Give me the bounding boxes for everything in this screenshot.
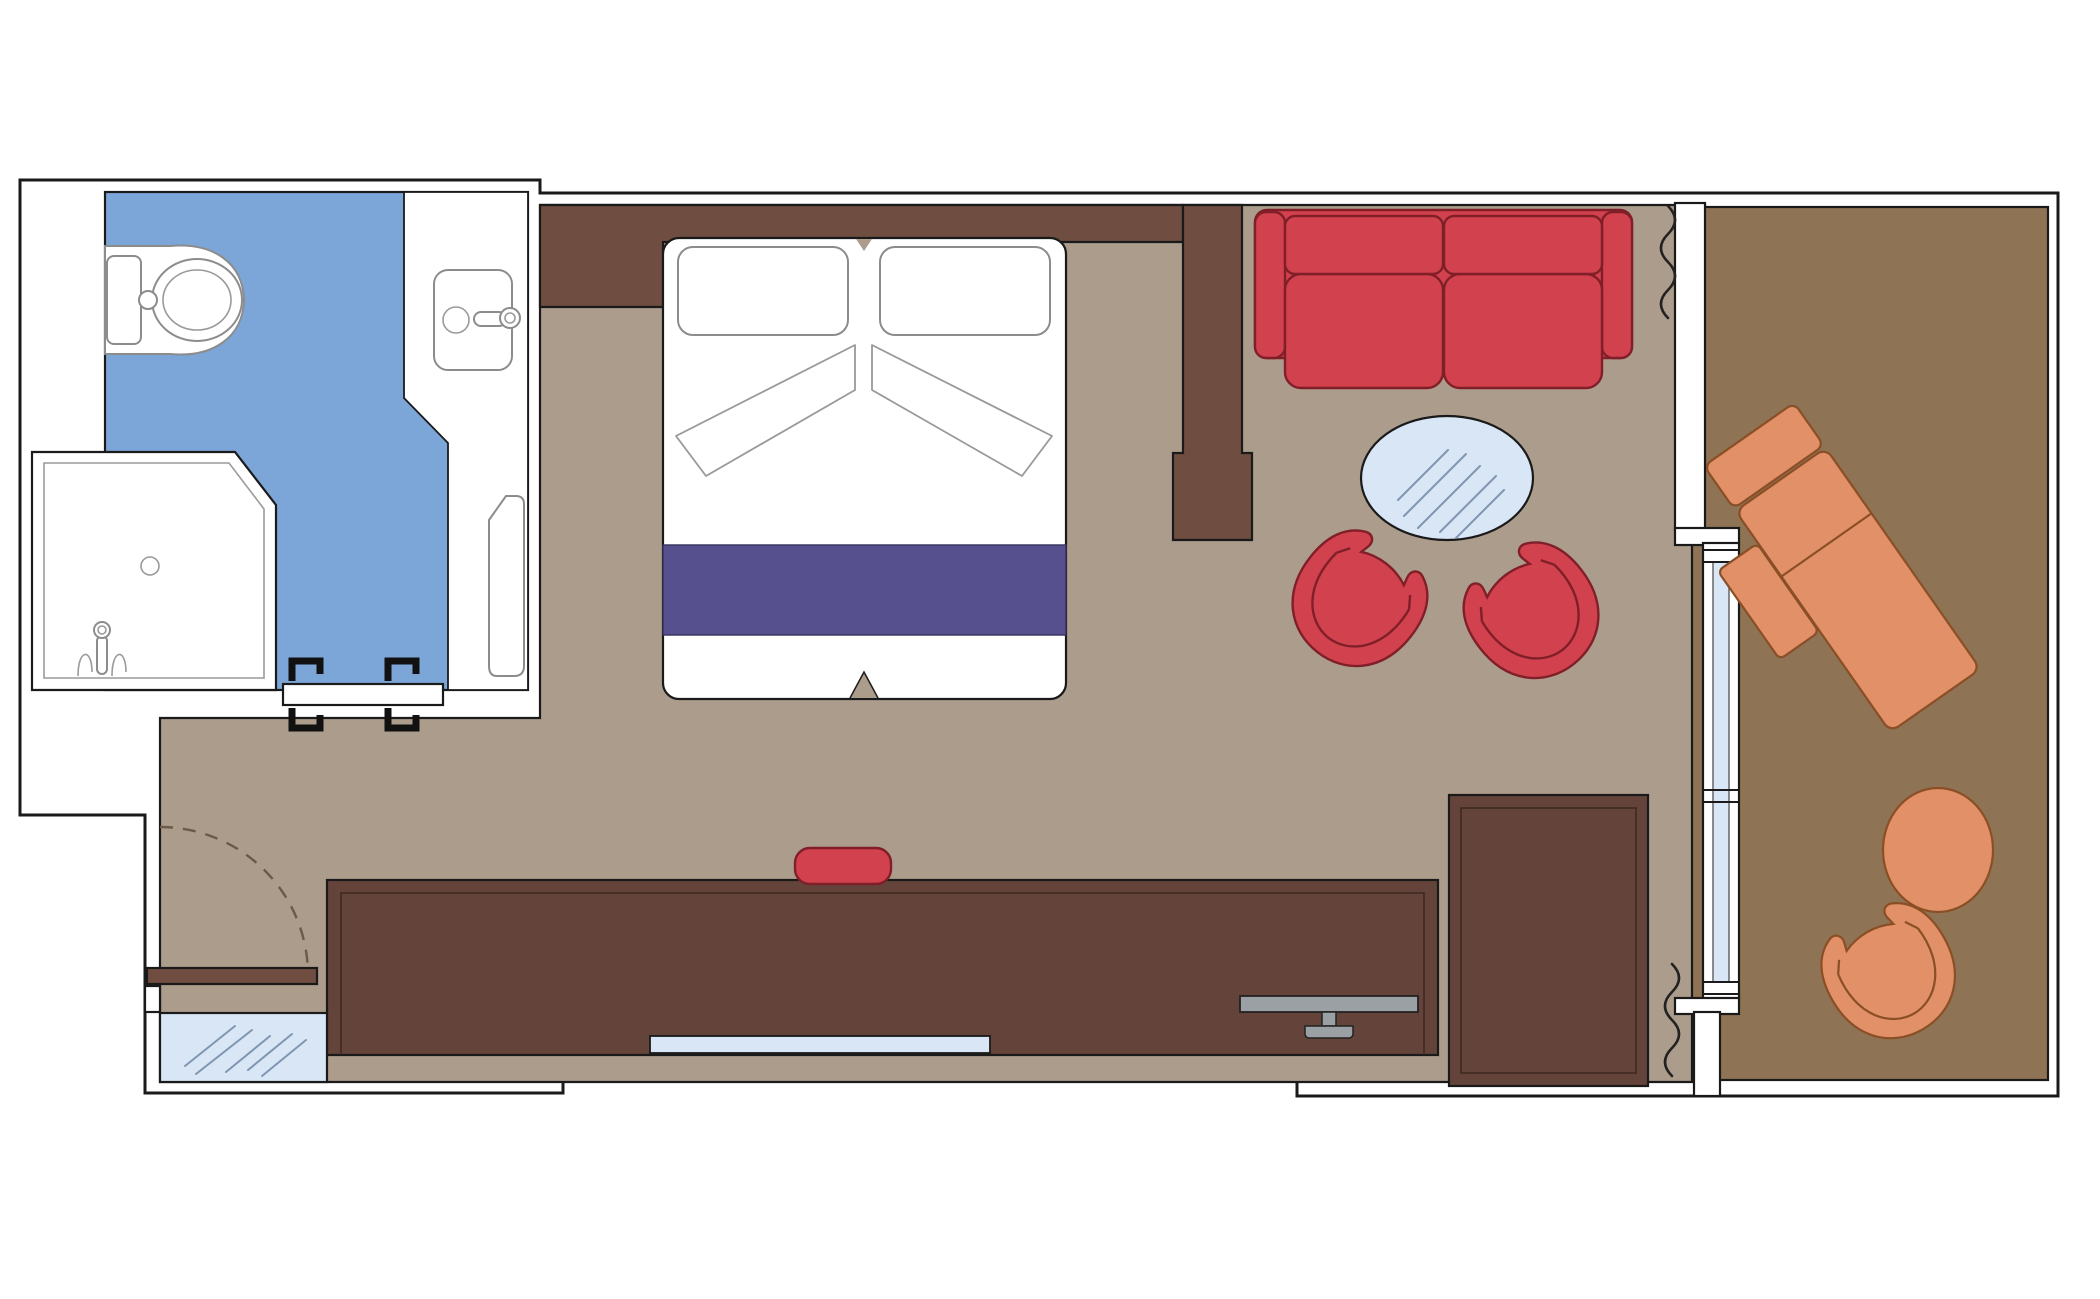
floor-plan-page: [0, 0, 2100, 1299]
coffee-table: [1361, 416, 1533, 540]
sofa: [1255, 210, 1632, 388]
desk-unit: [327, 880, 1438, 1055]
sofa-seat-left: [1285, 274, 1443, 388]
partition-column: [1173, 205, 1252, 540]
double-bed: [663, 238, 1066, 699]
pillow-left: [678, 247, 848, 335]
entrance-door-leaf: [147, 968, 317, 984]
toilet-flush-button: [139, 291, 157, 309]
entry-wall-step: [145, 986, 160, 1012]
sofa-seat-right: [1444, 274, 1602, 388]
desk-mirror-strip: [650, 1036, 990, 1053]
sofa-back-right: [1444, 216, 1602, 274]
wardrobe: [1449, 795, 1648, 1086]
shower: [32, 452, 276, 690]
bed-runner: [663, 545, 1066, 635]
window-wall-lower: [1694, 1012, 1720, 1096]
washbasin: [434, 270, 520, 370]
window-wall-upper: [1675, 203, 1705, 530]
sofa-back-left: [1285, 216, 1443, 274]
stool: [795, 848, 891, 884]
floor-plan-svg: [0, 0, 2100, 1299]
pillow-right: [880, 247, 1050, 335]
toilet: [105, 245, 244, 354]
balcony-table: [1883, 788, 1993, 912]
vanity-ledge: [489, 496, 524, 676]
entry-mirror: [160, 1013, 327, 1082]
window-glass: [1713, 562, 1729, 982]
